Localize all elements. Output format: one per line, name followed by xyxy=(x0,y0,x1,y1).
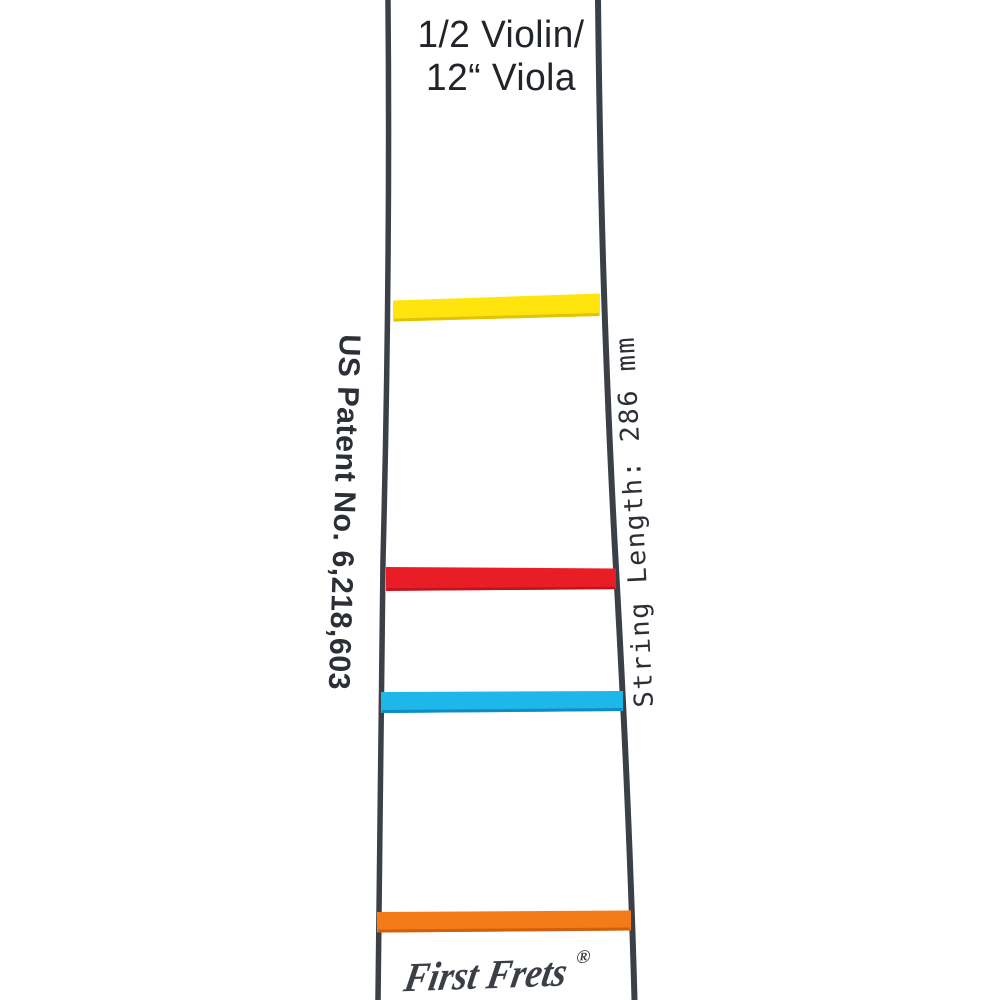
brand-logo-text: First Frets xyxy=(400,949,571,1000)
size-label-line2: 12“ Viola xyxy=(426,57,576,99)
fingerboard-graphic: 1/2 Violin/ 12“ Viola US Patent No. 6,21… xyxy=(0,0,1000,1000)
fret-tape-blue-lower-edge xyxy=(382,710,622,712)
fret-tape-orange-lower-edge xyxy=(378,929,630,931)
product-image: 1/2 Violin/ 12“ Viola US Patent No. 6,21… xyxy=(0,0,1000,1000)
size-label-line1: 1/2 Violin/ xyxy=(418,14,585,56)
fret-tape-red-lower-edge xyxy=(387,588,615,590)
background xyxy=(0,0,1000,1000)
